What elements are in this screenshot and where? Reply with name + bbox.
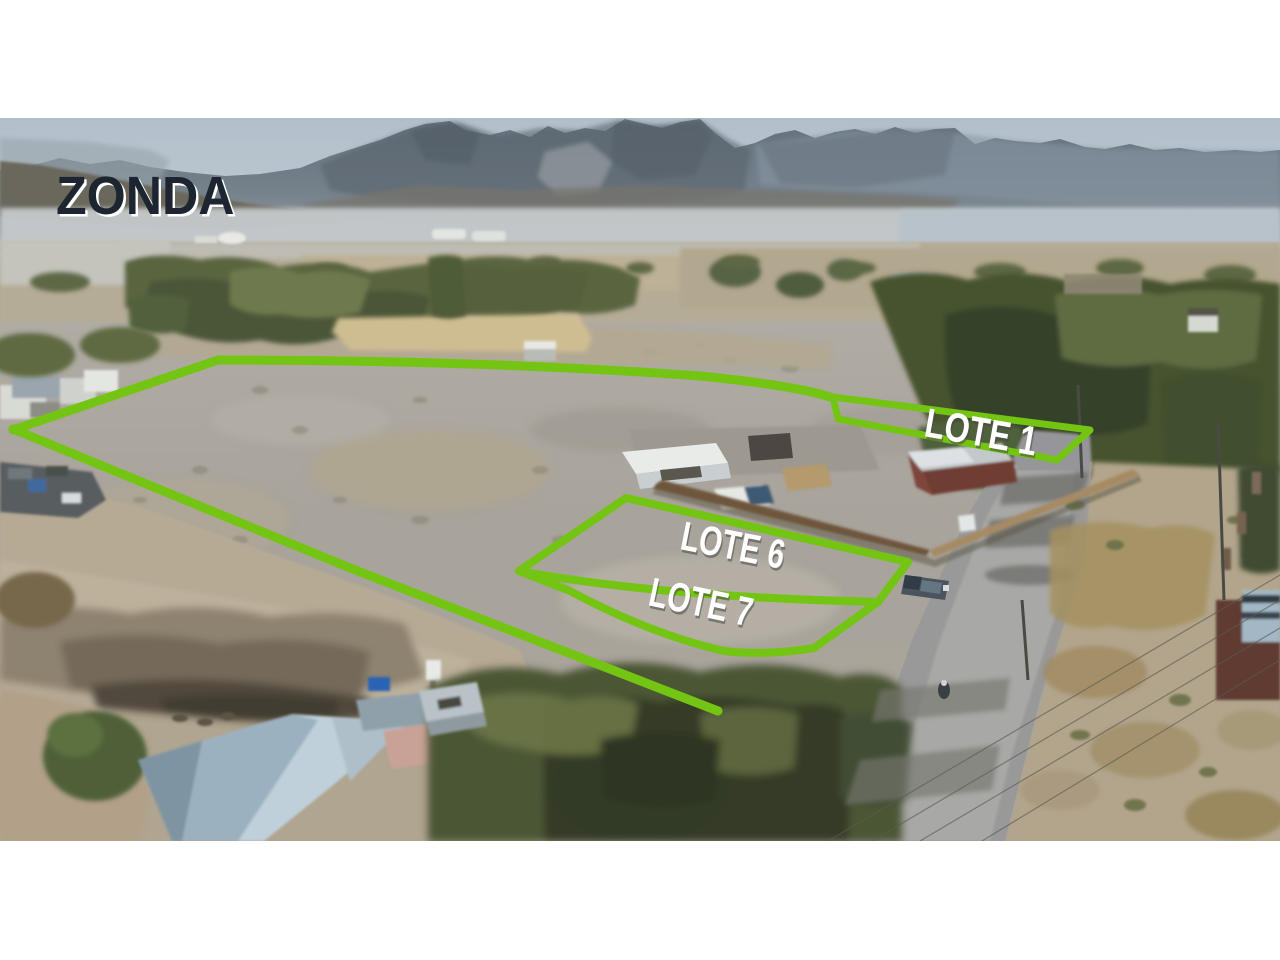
svg-text:ZONDA: ZONDA bbox=[56, 166, 234, 226]
